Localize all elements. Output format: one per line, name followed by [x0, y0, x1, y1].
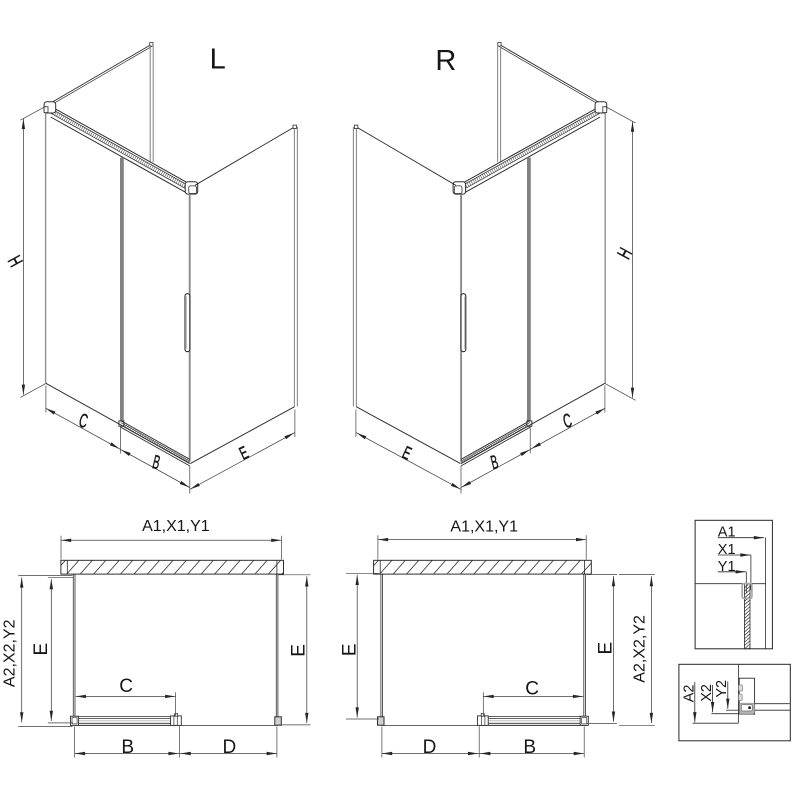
svg-text:X1: X1: [718, 542, 736, 558]
svg-text:L: L: [210, 44, 226, 76]
svg-text:B: B: [121, 737, 134, 758]
svg-text:C: C: [525, 679, 539, 700]
svg-text:R: R: [435, 45, 456, 77]
svg-text:E: E: [339, 643, 360, 656]
svg-text:Y1: Y1: [718, 559, 736, 575]
svg-text:D: D: [223, 737, 237, 758]
svg-text:A1,X1,Y1: A1,X1,Y1: [450, 518, 518, 535]
svg-text:B: B: [523, 737, 536, 758]
svg-text:E: E: [595, 642, 616, 655]
svg-text:A2,X2,Y2: A2,X2,Y2: [1, 619, 18, 687]
svg-text:E: E: [31, 643, 52, 656]
svg-text:A1,X1,Y1: A1,X1,Y1: [142, 518, 210, 535]
svg-text:C: C: [119, 676, 133, 697]
svg-text:A2,X2,Y2: A2,X2,Y2: [632, 615, 649, 683]
svg-text:D: D: [423, 737, 437, 758]
svg-text:E: E: [288, 644, 309, 657]
